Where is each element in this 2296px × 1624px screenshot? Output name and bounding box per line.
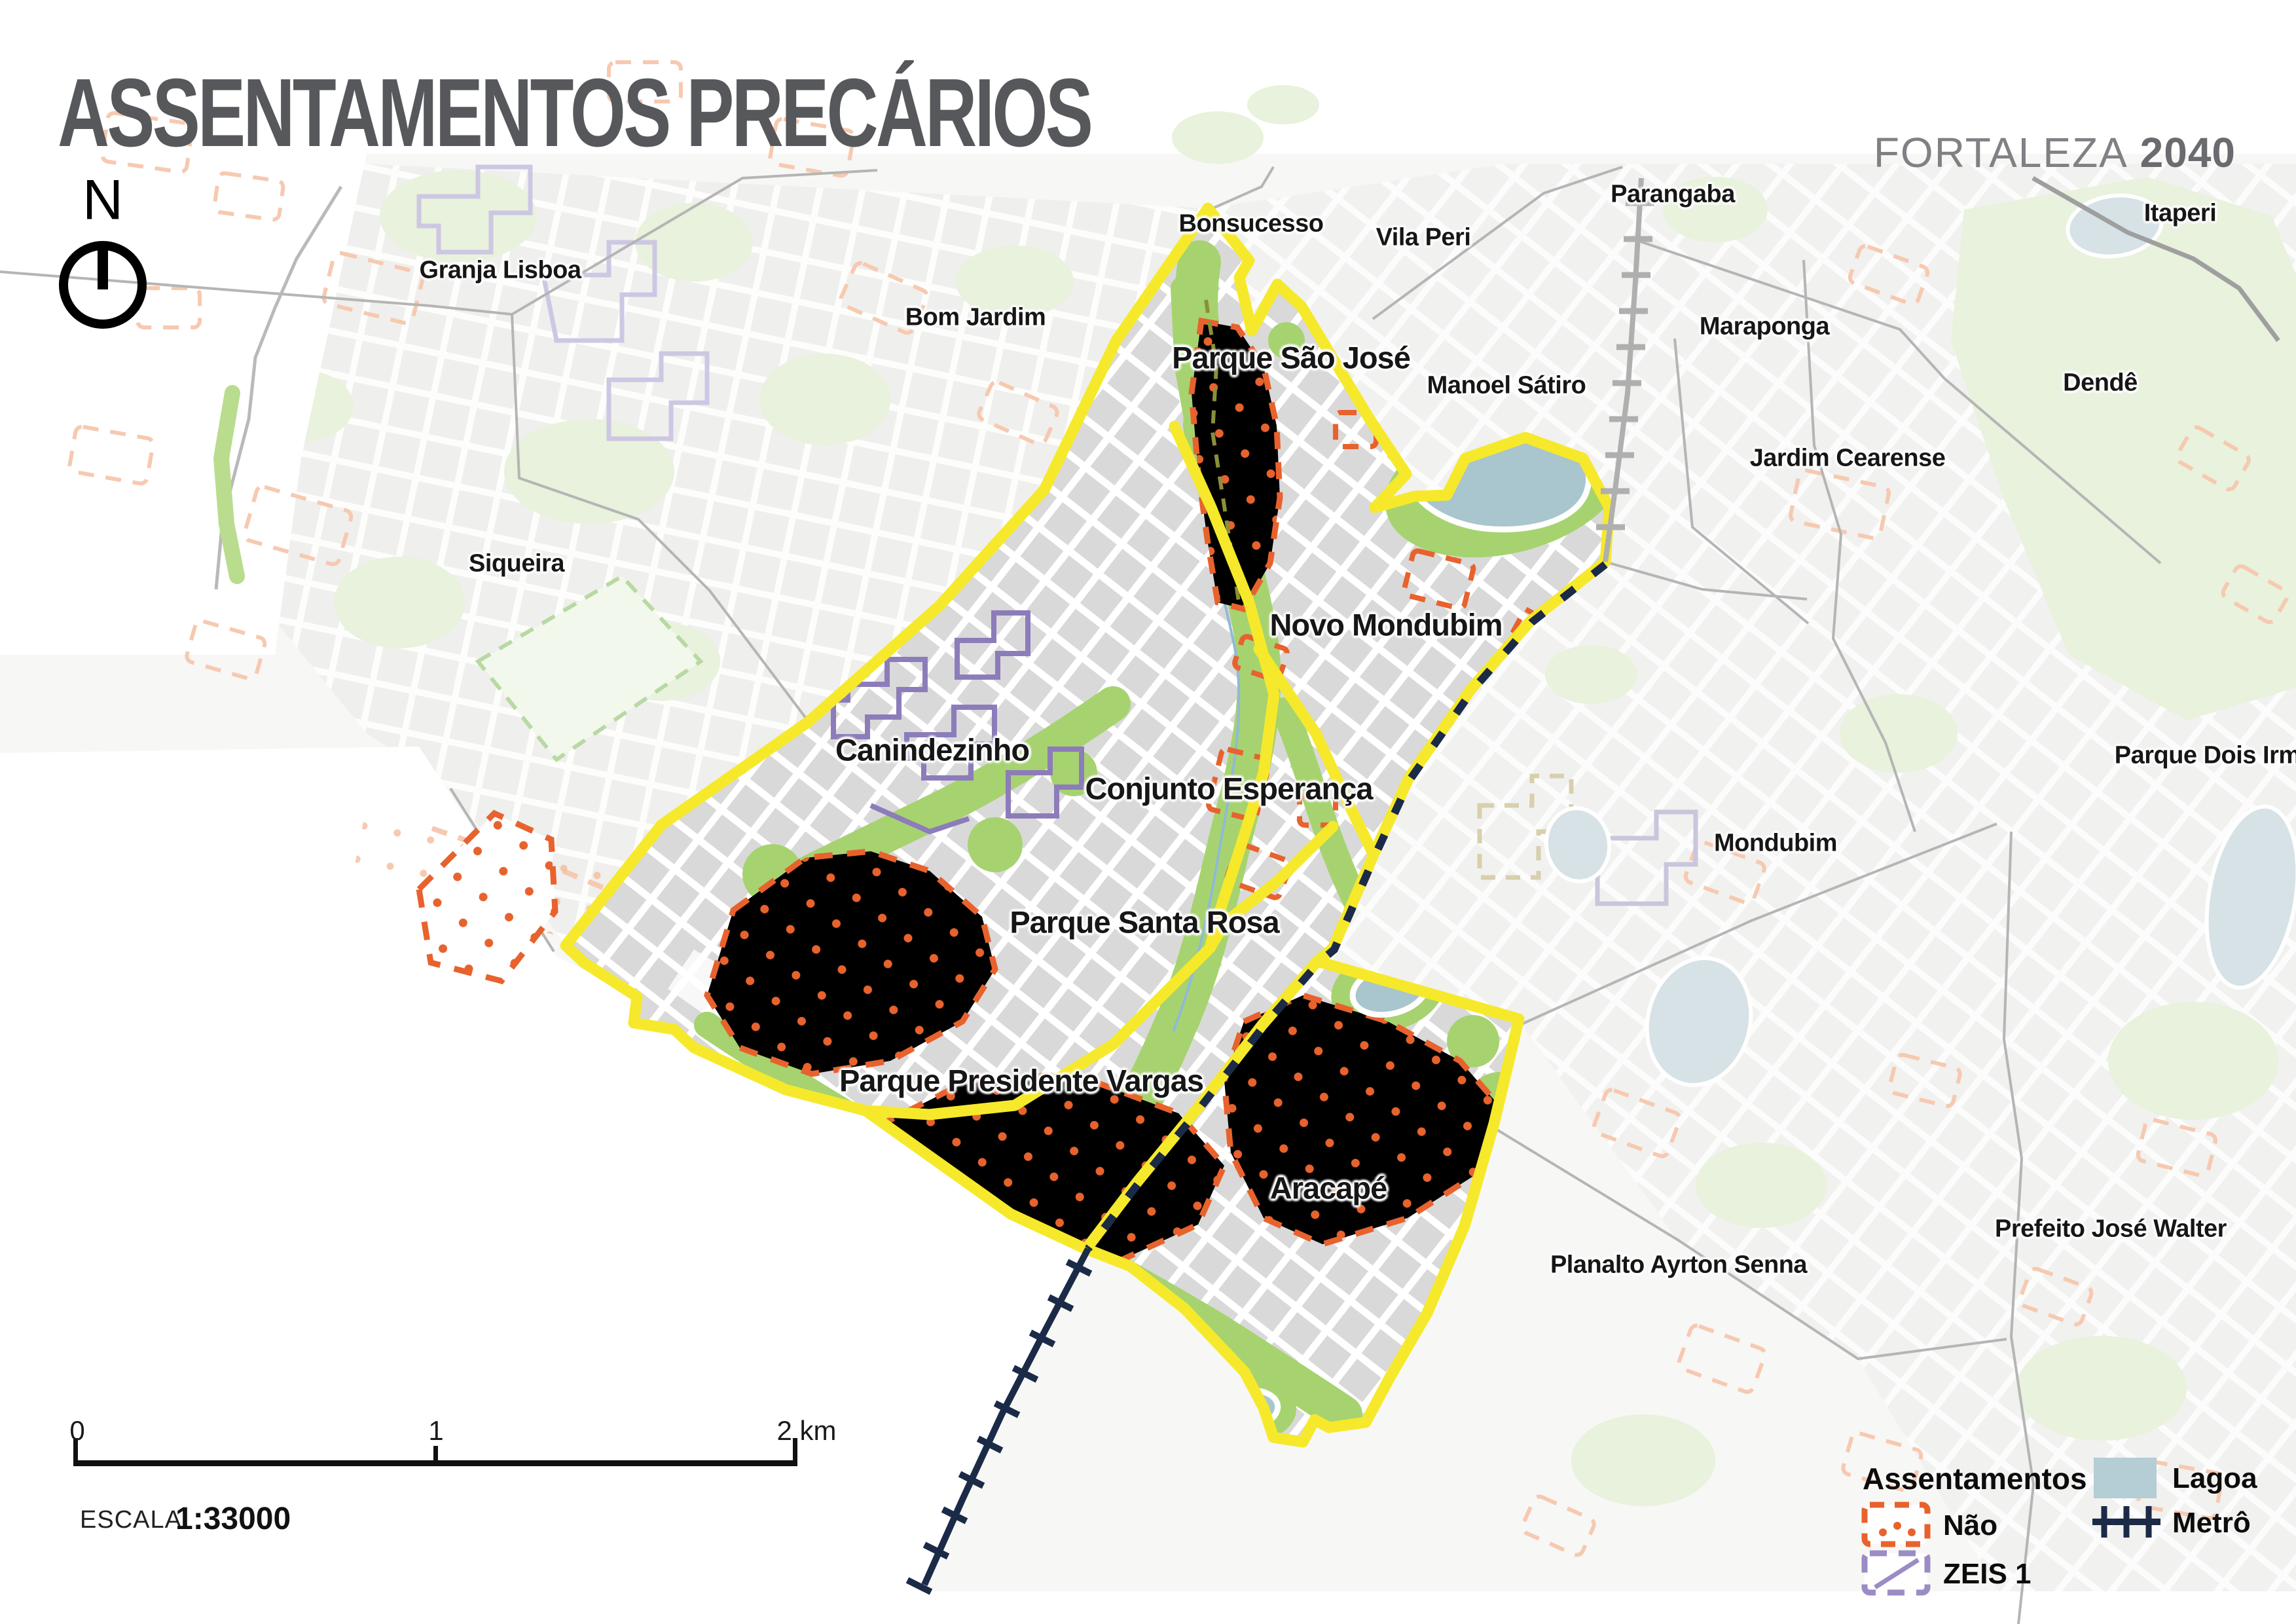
legend-swatch-zeis [1865, 1553, 1927, 1593]
map-label-manoel-satiro: Manoel Sátiro [1427, 372, 1586, 400]
legend-swatch-nao [1865, 1505, 1927, 1544]
map-label-parangaba: Parangaba [1611, 181, 1735, 209]
legend-header: Assentamentos [1863, 1461, 2087, 1496]
map-label-itaperi: Itaperi [2144, 200, 2217, 228]
scalebar-ratio: 1:33000 [175, 1501, 291, 1537]
brand-city: FORTALEZA [1874, 129, 2128, 176]
map-label-parque-presidente-vargas: Parque Presidente Vargas [839, 1063, 1203, 1099]
map-label-parque-sao-jose: Parque São José [1172, 340, 1410, 376]
map-label-canindezinho: Canindezinho [835, 732, 1029, 768]
map-label-conjunto-esperanca: Conjunto Esperança [1085, 771, 1372, 807]
page-title: ASSENTAMENTOS PRECÁRIOS [58, 58, 1091, 169]
legend-swatch-metro [2092, 1506, 2160, 1538]
map-label-aracape: Aracapé [1270, 1170, 1387, 1206]
map-label-jardim-cearense: Jardim Cearense [1750, 445, 1946, 473]
map-label-novo-mondubim: Novo Mondubim [1269, 607, 1502, 643]
page: ASSENTAMENTOS PRECÁRIOS FORTALEZA 2040 N… [0, 0, 2296, 1624]
map-label-bom-jardim: Bom Jardim [905, 304, 1046, 332]
scalebar-tick-0: 0 [69, 1415, 84, 1447]
map-label-parque-dois-irma: Parque Dois Irmã [2115, 742, 2296, 770]
map-label-planalto-ayrton-senna: Planalto Ayrton Senna [1550, 1251, 1807, 1280]
map-label-bonsucesso: Bonsucesso [1179, 210, 1324, 238]
brand-year: 2040 [2140, 129, 2236, 176]
north-label: N [82, 168, 123, 233]
legend-label-zeis1: ZEIS 1 [1943, 1558, 2032, 1591]
scalebar-tick-2: 2 km [776, 1415, 836, 1447]
legend-label-metro: Metrô [2172, 1507, 2251, 1540]
map-label-prefeito-jose-walter: Prefeito José Walter [1995, 1215, 2227, 1244]
map-label-vila-peri: Vila Peri [1376, 224, 1471, 252]
map-label-maraponga: Maraponga [1700, 313, 1829, 341]
map-canvas [0, 0, 2296, 1624]
scalebar-escala-label: ESCALA [80, 1506, 182, 1534]
map-label-mondubim: Mondubim [1714, 830, 1837, 858]
map-label-parque-santa-rosa: Parque Santa Rosa [1010, 904, 1279, 940]
scalebar-tick-1: 1 [428, 1415, 443, 1447]
map-label-siqueira: Siqueira [469, 550, 564, 578]
legend-label-nao: Não [1943, 1509, 1997, 1542]
map-label-granja-lisboa: Granja Lisboa [420, 257, 581, 285]
map-label-dende: Dendê [2063, 369, 2138, 397]
legend-label-lagoa: Lagoa [2172, 1462, 2257, 1495]
legend-swatch-lagoa [2094, 1458, 2157, 1498]
brand: FORTALEZA 2040 [1874, 128, 2236, 177]
